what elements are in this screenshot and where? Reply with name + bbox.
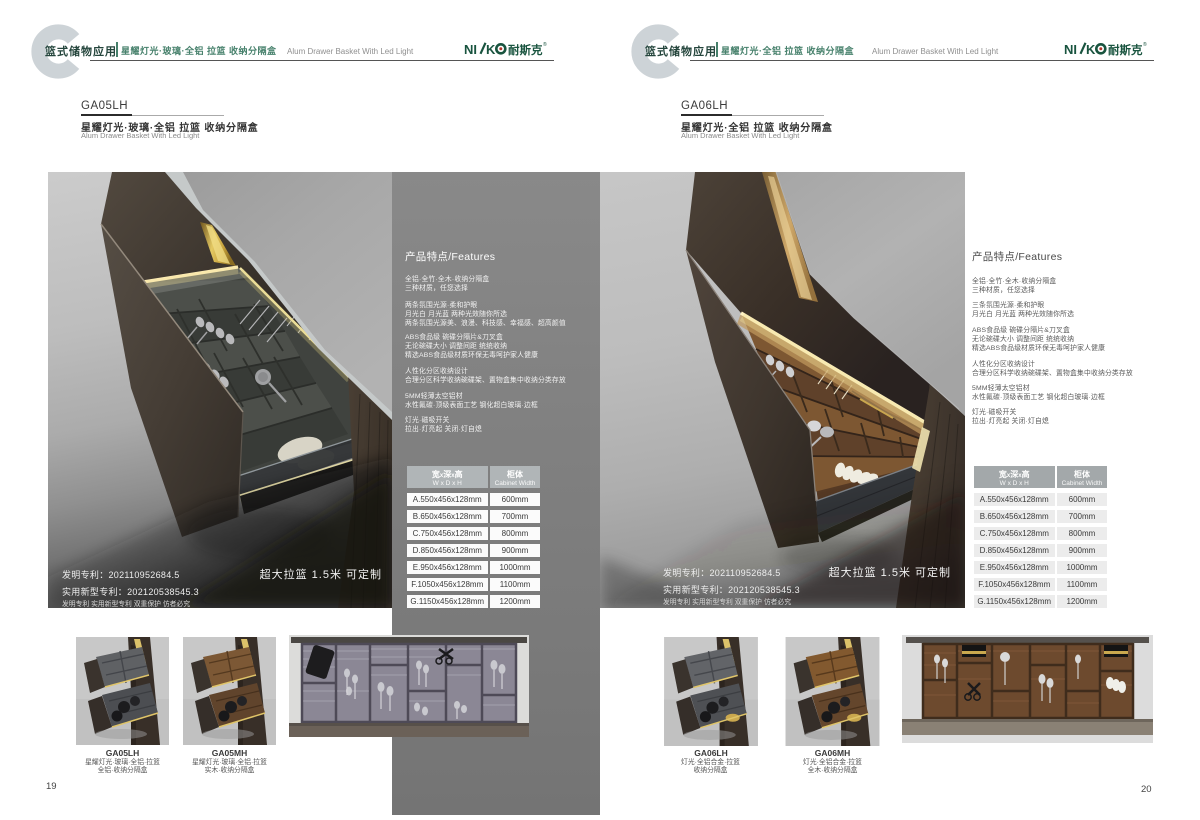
svg-text:耐斯克: 耐斯克 <box>1108 43 1143 57</box>
svg-text:K: K <box>486 42 496 57</box>
svg-text:耐斯克: 耐斯克 <box>508 43 543 57</box>
svg-text:K: K <box>1086 42 1096 57</box>
svg-text:®: ® <box>543 41 547 48</box>
svg-text:®: ® <box>1143 41 1147 48</box>
svg-text:NI: NI <box>464 42 477 57</box>
svg-text:NI: NI <box>1064 42 1077 57</box>
